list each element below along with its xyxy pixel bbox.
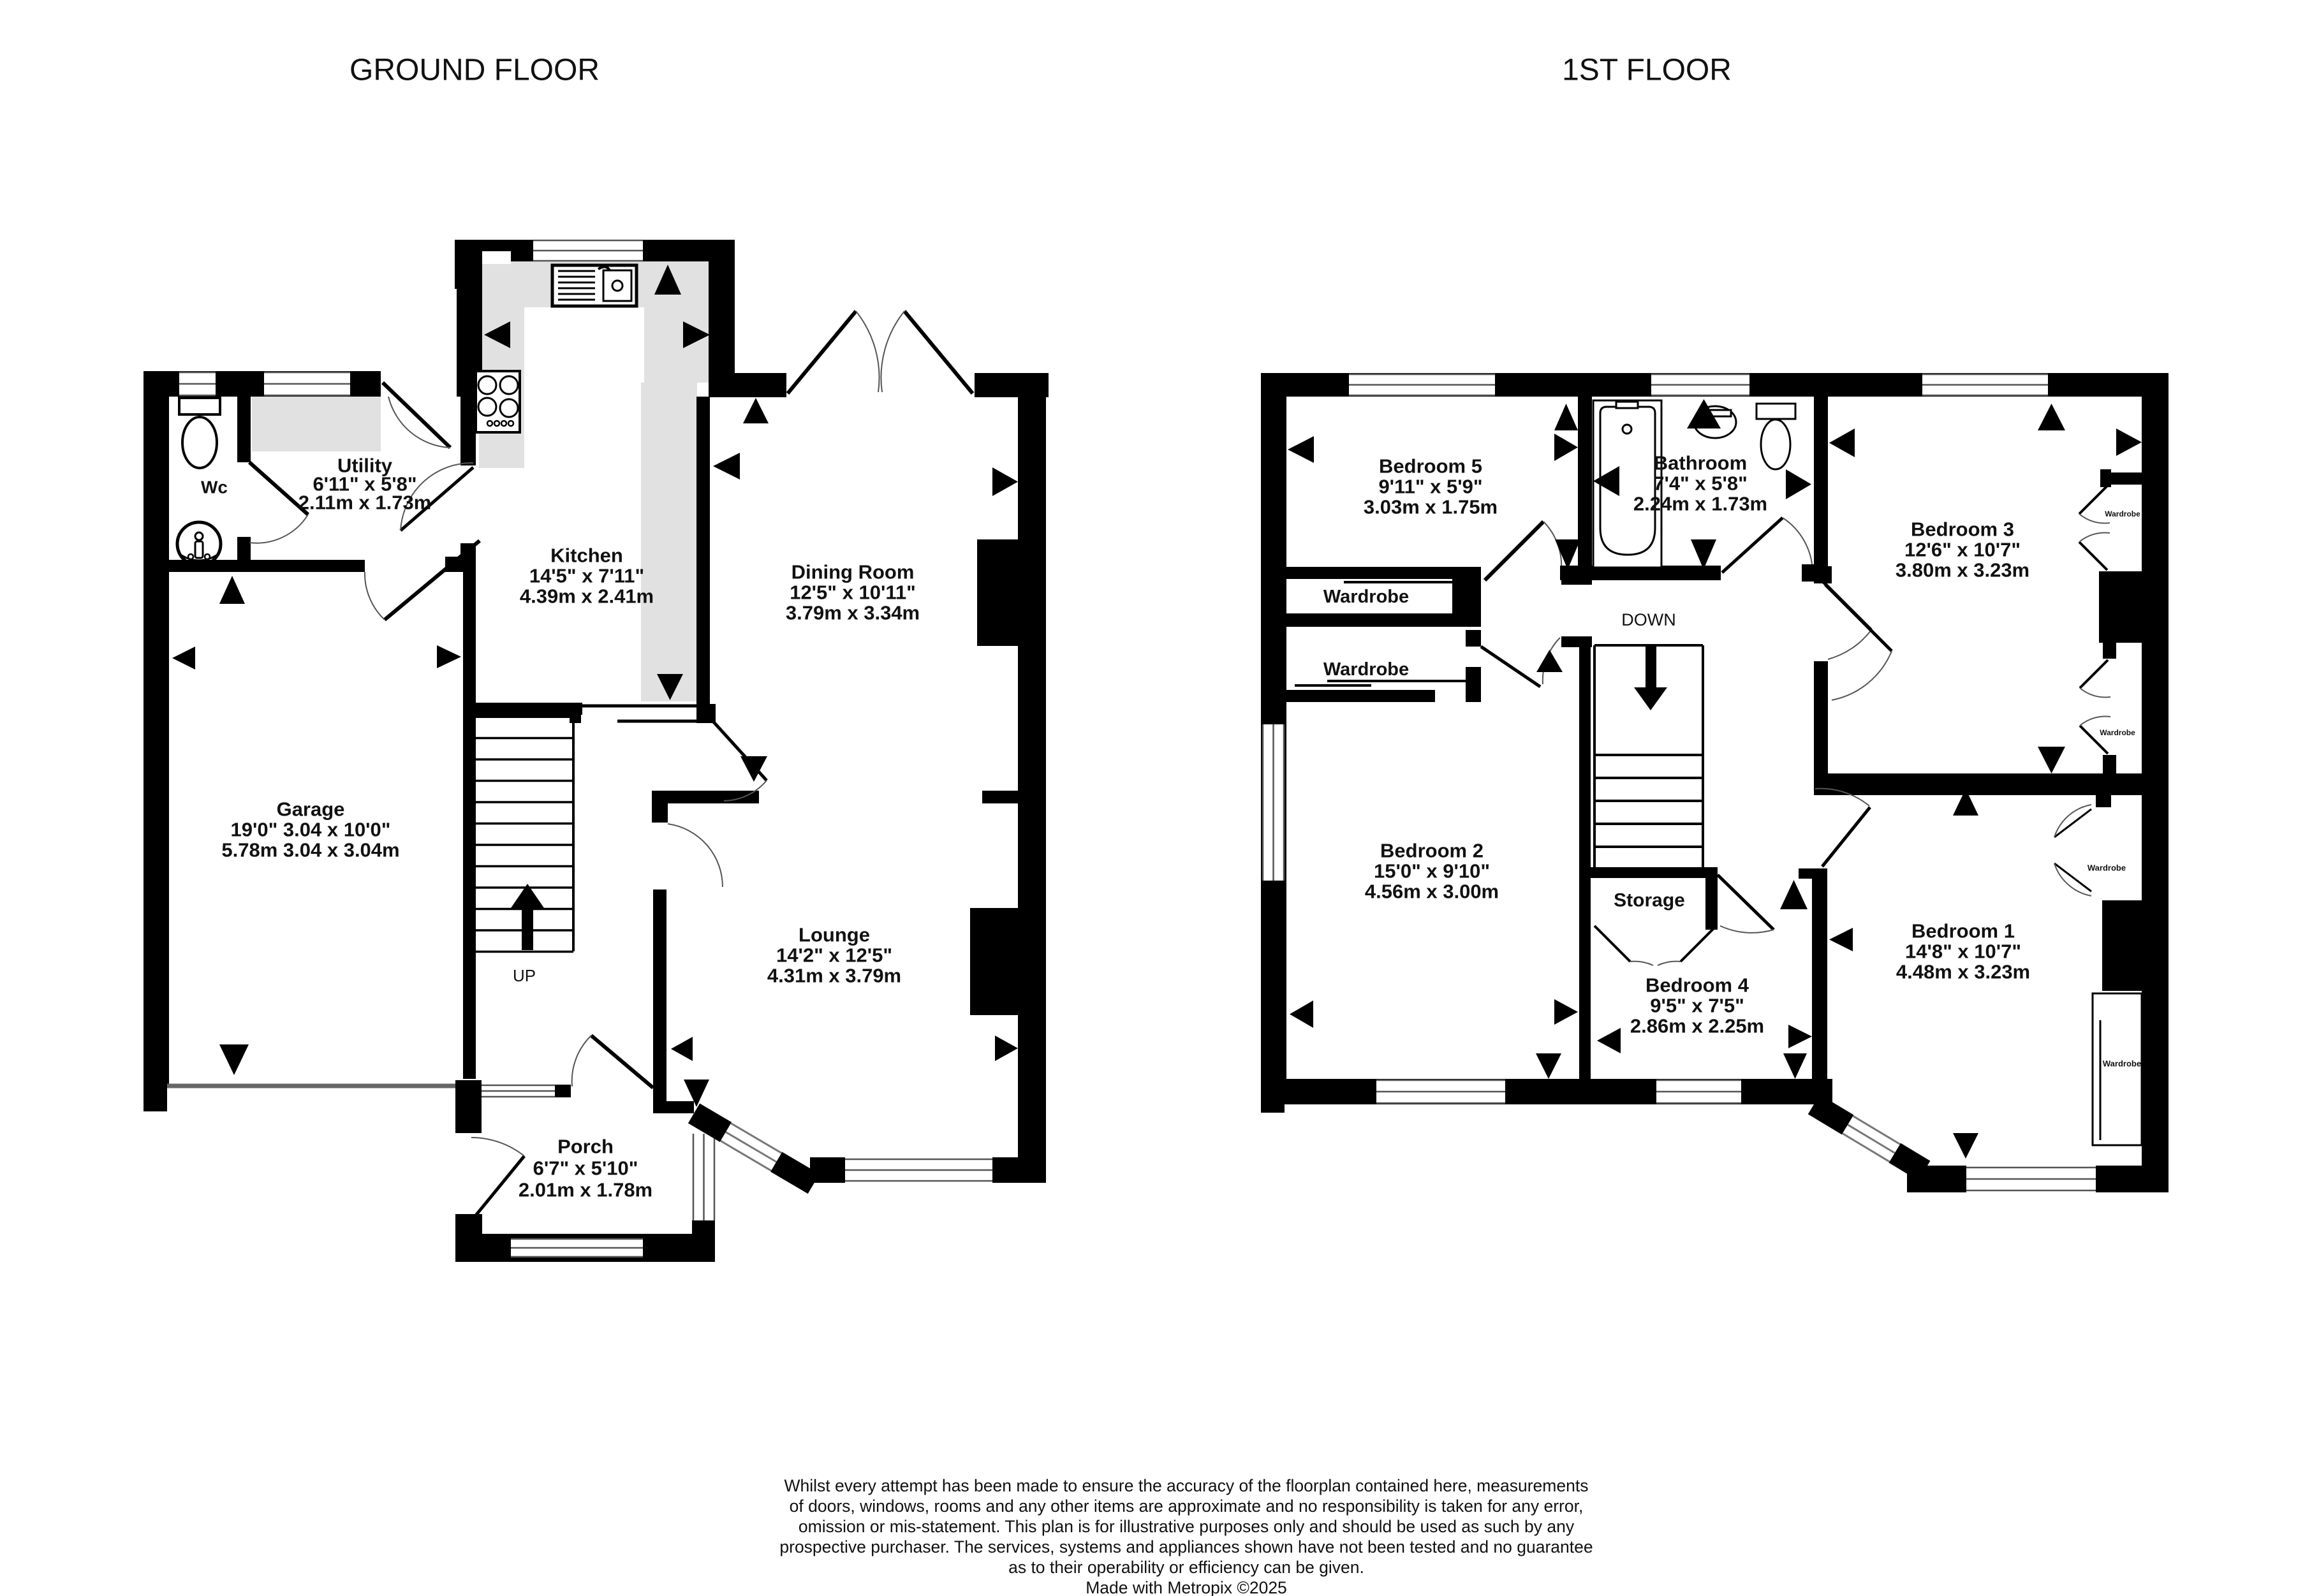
svg-text:Wardrobe: Wardrobe [1323,587,1409,607]
svg-text:Bedroom 312'6" x 10'7"3.80m: Bedroom 312'6" x 10'7"3.80m x 3.23m [1896,518,2029,582]
svg-text:DOWN: DOWN [1621,610,1675,629]
svg-text:Storage: Storage [1614,890,1685,911]
svg-text:Bedroom 114'8" x 10'7"4.48m: Bedroom 114'8" x 10'7"4.48m x 3.23m [1896,920,2030,983]
svg-text:Wardrobe: Wardrobe [1323,659,1409,680]
svg-text:Wardrobe: Wardrobe [2087,863,2126,873]
svg-text:Bedroom 49'5" x 7'5"2.86m x: Bedroom 49'5" x 7'5"2.86m x 2.25m [1630,974,1764,1037]
svg-text:Bedroom 215'0" x 9'10"4.56m: Bedroom 215'0" x 9'10"4.56m x 3.00m [1365,840,1499,903]
svg-text:Bedroom 59'11" x 5'9"3.03m x: Bedroom 59'11" x 5'9"3.03m x 1.75m [1364,455,1498,518]
svg-text:GROUND FLOOR: GROUND FLOOR [350,54,600,87]
svg-text:Wc: Wc [201,478,228,497]
svg-text:Wardrobe: Wardrobe [2103,1059,2141,1069]
svg-text:UP: UP [513,966,536,985]
svg-text:1ST FLOOR: 1ST FLOOR [1562,54,1732,87]
svg-text:Dining Room12'5" x 10'11"3.79: Dining Room12'5" x 10'11"3.79m x 3.34m [786,561,920,624]
svg-text:Wardrobe: Wardrobe [2105,509,2140,518]
svg-text:Wardrobe: Wardrobe [2100,728,2135,737]
